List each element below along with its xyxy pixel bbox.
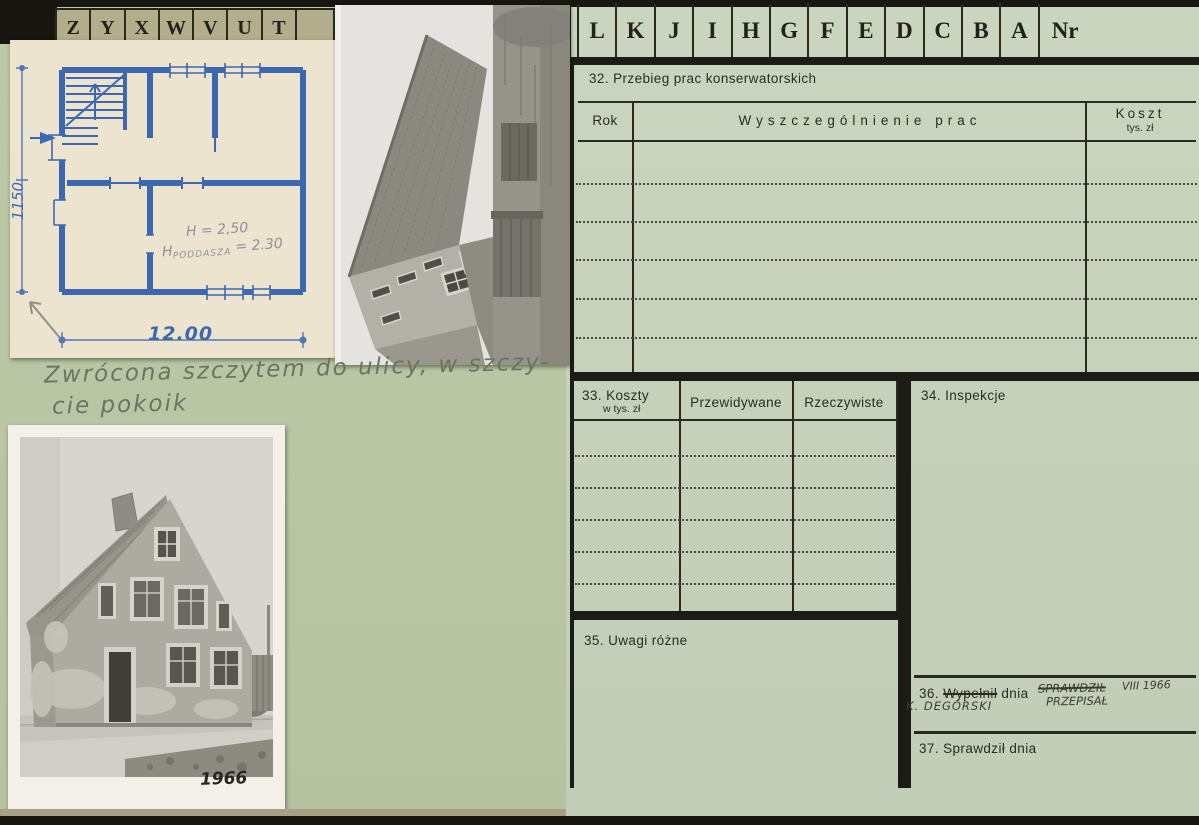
blueprint-dim-width: 12.00 <box>148 323 213 345</box>
section36-word-dnia: dnia <box>1001 686 1028 701</box>
house-photo-image <box>20 437 273 777</box>
table33-header-line <box>574 419 896 421</box>
handwriting-date: VIII 1966 <box>1122 678 1171 693</box>
tab-letter-label: W <box>166 17 186 39</box>
rotated-house-photo <box>335 5 570 365</box>
table32-header-rok: Rok <box>578 113 632 128</box>
handwriting-name: K. DEGÓRSKI <box>906 699 992 713</box>
tab-letter: J <box>654 4 692 57</box>
form-left-rule <box>570 57 574 788</box>
table32-header-cost: Koszt <box>1087 106 1193 121</box>
table32-line-header <box>578 140 1196 142</box>
form-center-bar <box>898 381 911 788</box>
tab-letter-label: I <box>708 18 717 43</box>
section32-title: 32. Przebieg prac konserwatorskich <box>589 71 816 86</box>
section37-title: 37. Sprawdził dnia <box>919 741 1037 756</box>
table33-header-actual: Rzeczywiste <box>794 395 894 410</box>
tab-letter: D <box>884 4 922 57</box>
table32-divider-koszt <box>1085 101 1087 374</box>
section36-top-line <box>914 675 1196 678</box>
tab-letter-label: X <box>135 17 149 39</box>
table32-dotted-row <box>576 221 1197 223</box>
blueprint-plan: 1150 12.00 H = 2,50 HPODDASZA = 2.30 <box>10 40 335 358</box>
tab-letter: F <box>807 4 845 57</box>
tab-letter: H <box>731 4 769 57</box>
table33-dotted-row <box>575 487 895 489</box>
tab-letter-label: G <box>780 18 798 43</box>
section35-title: 35. Uwagi różne <box>584 633 688 648</box>
section34-title: 34. Inspekcje <box>921 388 1006 403</box>
rotated-photo-image <box>335 5 570 365</box>
section33-subtitle: w tys. zł <box>603 403 640 415</box>
tab-letter-label: E <box>858 18 873 43</box>
handwriting-przepisal: PRZEPISAŁ <box>1046 693 1108 708</box>
pencil-h-value: = 2.30 <box>235 236 283 255</box>
tab-letter-label: V <box>203 17 217 39</box>
tab-letter-label: T <box>272 17 285 39</box>
table32-line-top <box>578 101 1196 103</box>
tab-letter-label: K <box>627 18 645 43</box>
table33-bottom-rule <box>570 611 911 620</box>
tab-letter: C <box>923 4 961 57</box>
tab-letter-label: L <box>590 18 605 43</box>
tab-letter: B <box>961 4 999 57</box>
tab-letter-label: C <box>934 18 951 43</box>
tab-letter: L <box>577 4 615 57</box>
tab-strip-right: L K J I H G F E D C B A Nr <box>577 4 1197 57</box>
blueprint-dim-height: 1150 <box>9 171 27 231</box>
tab-letter-label: Y <box>100 17 114 39</box>
tab-letter-label: Z <box>66 17 79 39</box>
table32-header-works: Wyszczególnienie prac <box>640 113 1080 128</box>
table32-dotted-row <box>576 337 1197 339</box>
table33-dotted-row <box>575 551 895 553</box>
tab-letter-label: Nr <box>1052 18 1079 43</box>
photo-year-caption: 1966 <box>200 768 248 790</box>
table32-header-cost-unit: tys. zł <box>1087 122 1193 134</box>
tab-letter: G <box>769 4 807 57</box>
scanner-edge-corner <box>0 0 57 44</box>
form-top-rule <box>570 57 1199 65</box>
scanned-record-card: Z Y X W V U T L K J I H G F E D C B A Nr… <box>0 0 1199 825</box>
table32-divider-rok <box>632 101 634 374</box>
tab-letter-label: J <box>668 18 680 43</box>
scanner-edge-bottom <box>0 816 1199 825</box>
tab-letter-label: U <box>237 17 251 39</box>
section37-top-line <box>914 731 1196 734</box>
table32-dotted-row <box>576 298 1197 300</box>
tab-letter-label: A <box>1011 18 1028 43</box>
handwritten-note-line2: cie pokoik <box>52 390 189 420</box>
tab-letter-label: H <box>742 18 760 43</box>
tab-letter: A <box>999 4 1037 57</box>
tab-letter-label: D <box>896 18 913 43</box>
tab-letter-label: F <box>821 18 835 43</box>
table33-dotted-row <box>575 583 895 585</box>
tab-letter: I <box>692 4 730 57</box>
table33-header-expected: Przewidywane <box>681 395 791 410</box>
table32-dotted-row <box>576 259 1197 261</box>
tab-letter-label: B <box>973 18 988 43</box>
table33-dotted-row <box>575 519 895 521</box>
pencil-h-symbol: H <box>162 244 174 261</box>
tab-letter-nr: Nr <box>1038 4 1188 57</box>
tab-letter: E <box>846 4 884 57</box>
blueprint-drawing <box>10 40 335 358</box>
table33-dotted-row <box>575 455 895 457</box>
tab-letter: K <box>615 4 653 57</box>
section33-title: 33. Koszty <box>582 388 649 403</box>
table32-dotted-row <box>576 183 1197 185</box>
table32-bottom-rule <box>570 372 1199 381</box>
house-photo: 1966 <box>8 425 285 812</box>
